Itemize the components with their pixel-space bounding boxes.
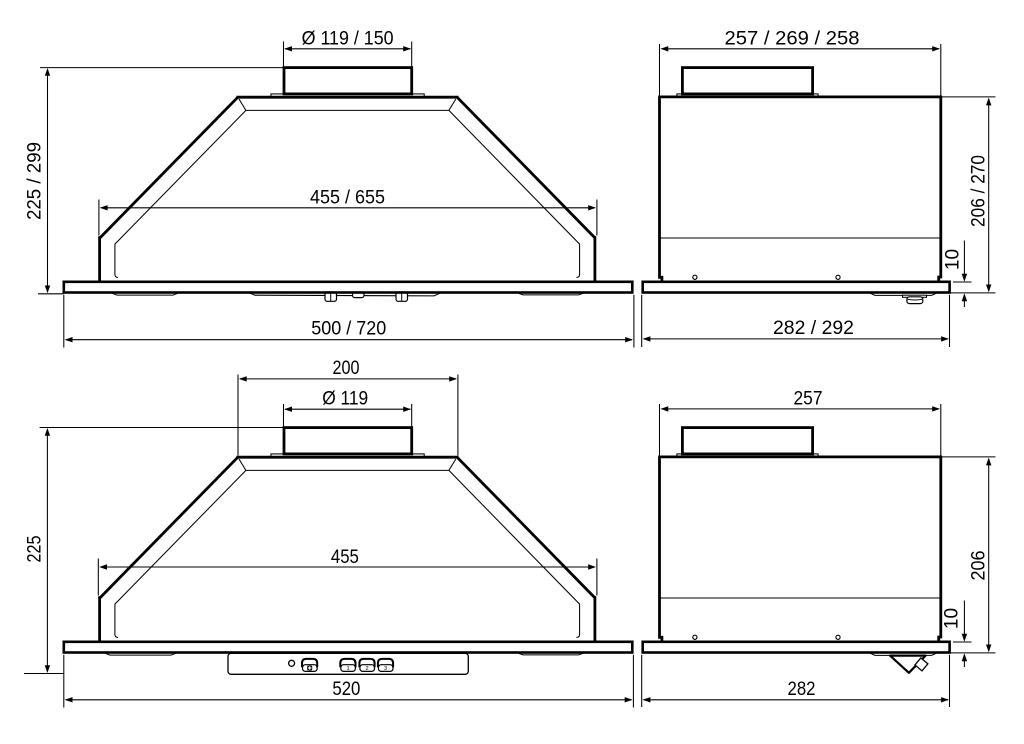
svg-text:225 / 299: 225 / 299: [25, 142, 46, 220]
svg-text:10: 10: [943, 249, 964, 270]
svg-text:282 / 292: 282 / 292: [773, 318, 854, 339]
svg-text:520: 520: [332, 679, 360, 700]
svg-text:1: 1: [346, 666, 349, 672]
svg-text:3: 3: [384, 666, 387, 672]
svg-text:455 / 655: 455 / 655: [310, 188, 385, 209]
svg-text:257 / 269 / 258: 257 / 269 / 258: [725, 29, 860, 50]
svg-text:257: 257: [794, 389, 823, 410]
svg-text:282: 282: [788, 679, 816, 700]
svg-text:206 / 270: 206 / 270: [969, 155, 990, 227]
svg-text:200: 200: [333, 358, 360, 379]
svg-text:2: 2: [366, 666, 369, 672]
svg-text:455: 455: [331, 547, 359, 568]
svg-text:206: 206: [968, 551, 989, 581]
svg-text:225: 225: [25, 536, 46, 563]
svg-text:Ø 119: Ø 119: [322, 389, 368, 410]
svg-text:10: 10: [942, 608, 963, 629]
svg-text:500 / 720: 500 / 720: [311, 319, 386, 340]
svg-text:Ø 119 / 150: Ø 119 / 150: [302, 29, 394, 50]
